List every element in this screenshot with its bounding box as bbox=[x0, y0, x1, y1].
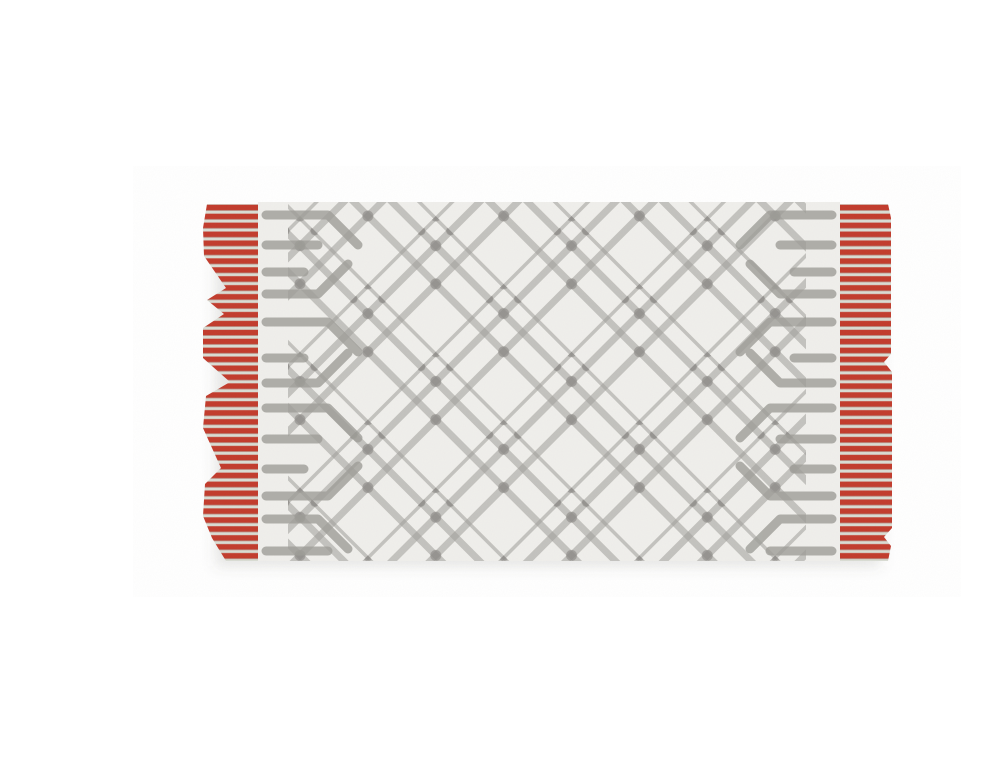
rug-illustration bbox=[40, 16, 1000, 746]
product-image-canvas: Rectangular cream flat-weave rug with an… bbox=[40, 16, 1000, 746]
fabric-texture-overlay bbox=[202, 202, 892, 561]
